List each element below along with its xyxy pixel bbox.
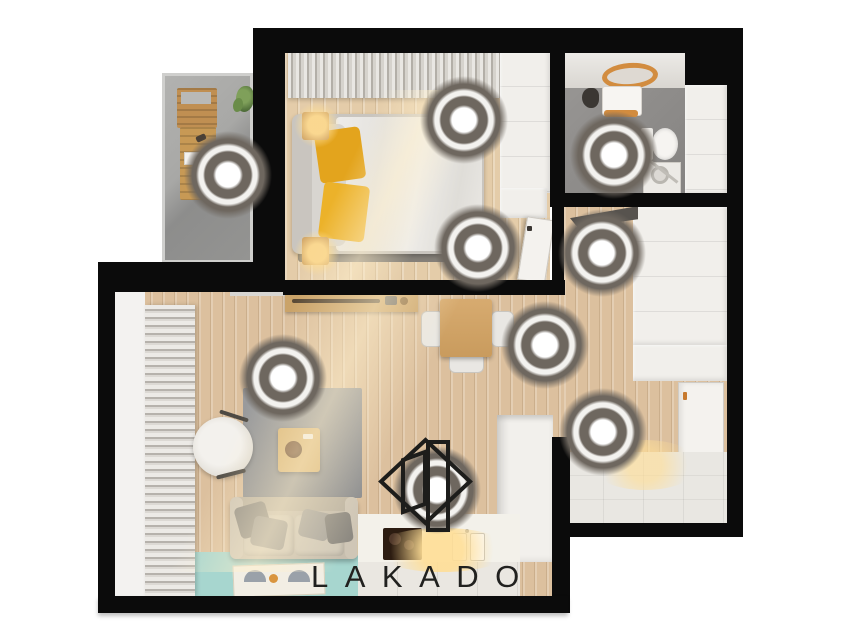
wall-right	[727, 53, 743, 537]
tv-soundbar	[292, 299, 380, 303]
sideboard-decor-2	[400, 297, 408, 305]
nightstand-top	[302, 112, 329, 140]
coffee-table-book	[303, 434, 313, 439]
window-blinds	[145, 305, 195, 596]
hotspot-entrance[interactable]	[558, 387, 648, 477]
hotspot-balcony[interactable]	[183, 130, 273, 220]
hotspot-living-room[interactable]	[238, 333, 328, 423]
lakado-logo-icon	[352, 408, 500, 544]
hotspot-hallway-wardrobe[interactable]	[557, 208, 647, 298]
sofa-pillow-2	[249, 515, 288, 551]
floorplan-canvas: LAKADO	[0, 0, 853, 640]
living-left-wall-face	[115, 292, 145, 596]
wall-step-vertical	[552, 437, 570, 613]
wall-left	[98, 262, 115, 613]
wall-bottom-right	[552, 523, 743, 537]
nightstand-bottom	[302, 237, 329, 265]
wall-bedroom-bottom	[283, 280, 565, 295]
balcony-shelf-top	[181, 92, 211, 104]
wall-bottom	[98, 596, 568, 613]
hotspot-dining[interactable]	[500, 300, 590, 390]
corridor-cabinet	[633, 345, 727, 381]
hotspot-bedroom-window[interactable]	[419, 75, 509, 165]
brand-wordmark: LAKADO	[311, 559, 536, 595]
bed-yellow-pillow-2	[318, 181, 370, 242]
wall-bedroom-bathroom	[550, 28, 565, 207]
hallway-wardrobe	[633, 207, 727, 345]
bathroom-plant	[582, 88, 599, 108]
hotspot-bathroom[interactable]	[569, 110, 659, 200]
pattern-rug-dot	[269, 574, 278, 583]
wall-bathroom-hallway	[550, 193, 743, 207]
coffee-table-bowl	[285, 441, 302, 458]
hotspot-bedroom-door[interactable]	[433, 203, 523, 293]
bedroom-door-handle	[527, 226, 532, 231]
dining-table	[440, 299, 492, 357]
sofa-pillow-4	[324, 511, 354, 544]
entrance-door-handle	[683, 392, 687, 400]
bathroom-cabinets-right	[685, 85, 727, 195]
sideboard-decor	[385, 296, 397, 305]
wall-top	[254, 28, 743, 53]
